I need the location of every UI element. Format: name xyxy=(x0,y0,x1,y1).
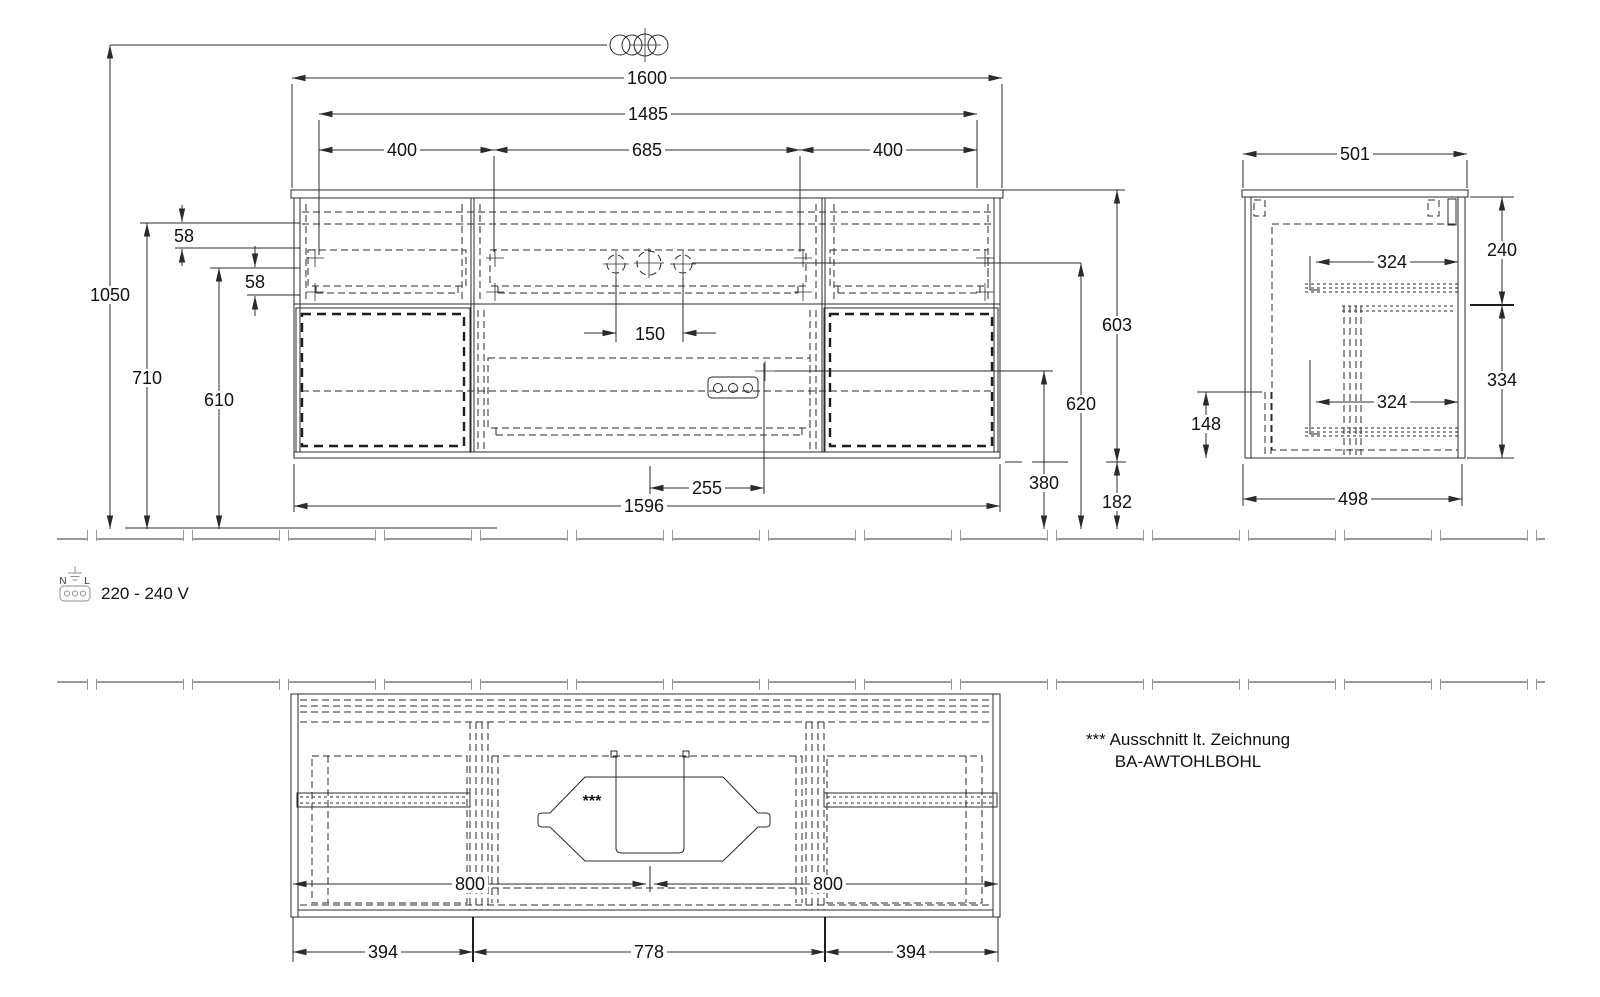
dim-778: 778 xyxy=(634,942,664,962)
door-right xyxy=(824,308,998,452)
dim-1485: 1485 xyxy=(628,104,668,124)
dim-501: 501 xyxy=(1340,144,1370,164)
dim-610: 610 xyxy=(204,390,234,410)
dim-1596: 1596 xyxy=(624,496,664,516)
dim-380: 380 xyxy=(1029,473,1059,493)
side-view: 501 324 324 240 334 148 498 xyxy=(1188,144,1520,509)
note-line-2: BA-AWTOHLBOHL xyxy=(1115,752,1261,771)
basin-drain-recess xyxy=(616,757,684,853)
drawer-runner-lower xyxy=(1310,360,1320,434)
dim-603: 603 xyxy=(1102,315,1132,335)
upper-drawer-left xyxy=(308,250,466,293)
dim-58-a: 58 xyxy=(174,226,194,246)
power-legend: N L 220 - 240 V xyxy=(59,566,189,603)
dim-148: 148 xyxy=(1191,414,1221,434)
dim-400-right: 400 xyxy=(873,140,903,160)
front-view-dimensions: 1600 1485 400 685 400 1050 710 610 58 58… xyxy=(87,45,1135,529)
faucet-holes xyxy=(603,248,696,278)
dim-620: 620 xyxy=(1066,394,1096,414)
dim-240: 240 xyxy=(1487,240,1517,260)
basin-drawer-box xyxy=(488,358,810,435)
dim-394-left: 394 xyxy=(368,942,398,962)
voltage-label: 220 - 240 V xyxy=(101,584,190,603)
dim-1600: 1600 xyxy=(627,68,667,88)
dim-150: 150 xyxy=(635,324,665,344)
dim-324-lower: 324 xyxy=(1377,392,1407,412)
plan-drawer-left xyxy=(297,756,470,903)
plan-view: *** 800 800 394 778 394 xyxy=(291,694,1000,962)
countertop-side xyxy=(1242,190,1468,197)
dim-498: 498 xyxy=(1338,489,1368,509)
light-connection-symbol xyxy=(110,28,668,62)
plan-drawer-right xyxy=(824,756,997,903)
cabinet-body-side xyxy=(1245,197,1465,458)
socket-l-label: L xyxy=(84,576,90,587)
cutout-marker: *** xyxy=(583,793,602,810)
floor-hatch-upper xyxy=(57,528,1545,541)
vanity-dimension-drawing: 1600 1485 400 685 400 1050 710 610 58 58… xyxy=(0,0,1600,997)
dim-1050: 1050 xyxy=(90,285,130,305)
socket-n-label: N xyxy=(59,576,66,587)
dim-58-b: 58 xyxy=(245,272,265,292)
upper-drawer-center xyxy=(490,250,806,293)
cutout-note: *** Ausschnitt lt. Zeichnung BA-AWTOHLBO… xyxy=(1086,730,1290,771)
technical-drawing-page: 1600 1485 400 685 400 1050 710 610 58 58… xyxy=(0,0,1600,997)
dim-400-left: 400 xyxy=(387,140,417,160)
dim-182: 182 xyxy=(1102,492,1132,512)
basin-cutout: *** xyxy=(538,751,770,861)
upper-drawer-right xyxy=(830,250,988,293)
countertop-front xyxy=(291,190,1003,198)
dim-710: 710 xyxy=(132,368,162,388)
door-left xyxy=(296,308,470,452)
dim-334: 334 xyxy=(1487,370,1517,390)
dim-394-right: 394 xyxy=(896,942,926,962)
socket-front xyxy=(708,361,775,398)
note-line-1: *** Ausschnitt lt. Zeichnung xyxy=(1086,730,1290,749)
floor-hatch-lower xyxy=(57,679,1545,690)
dim-255: 255 xyxy=(692,478,722,498)
dim-800-left: 800 xyxy=(455,874,485,894)
dim-685: 685 xyxy=(632,140,662,160)
drawer-runner-upper xyxy=(1310,256,1320,290)
dim-324-upper: 324 xyxy=(1377,252,1407,272)
dim-800-right: 800 xyxy=(813,874,843,894)
